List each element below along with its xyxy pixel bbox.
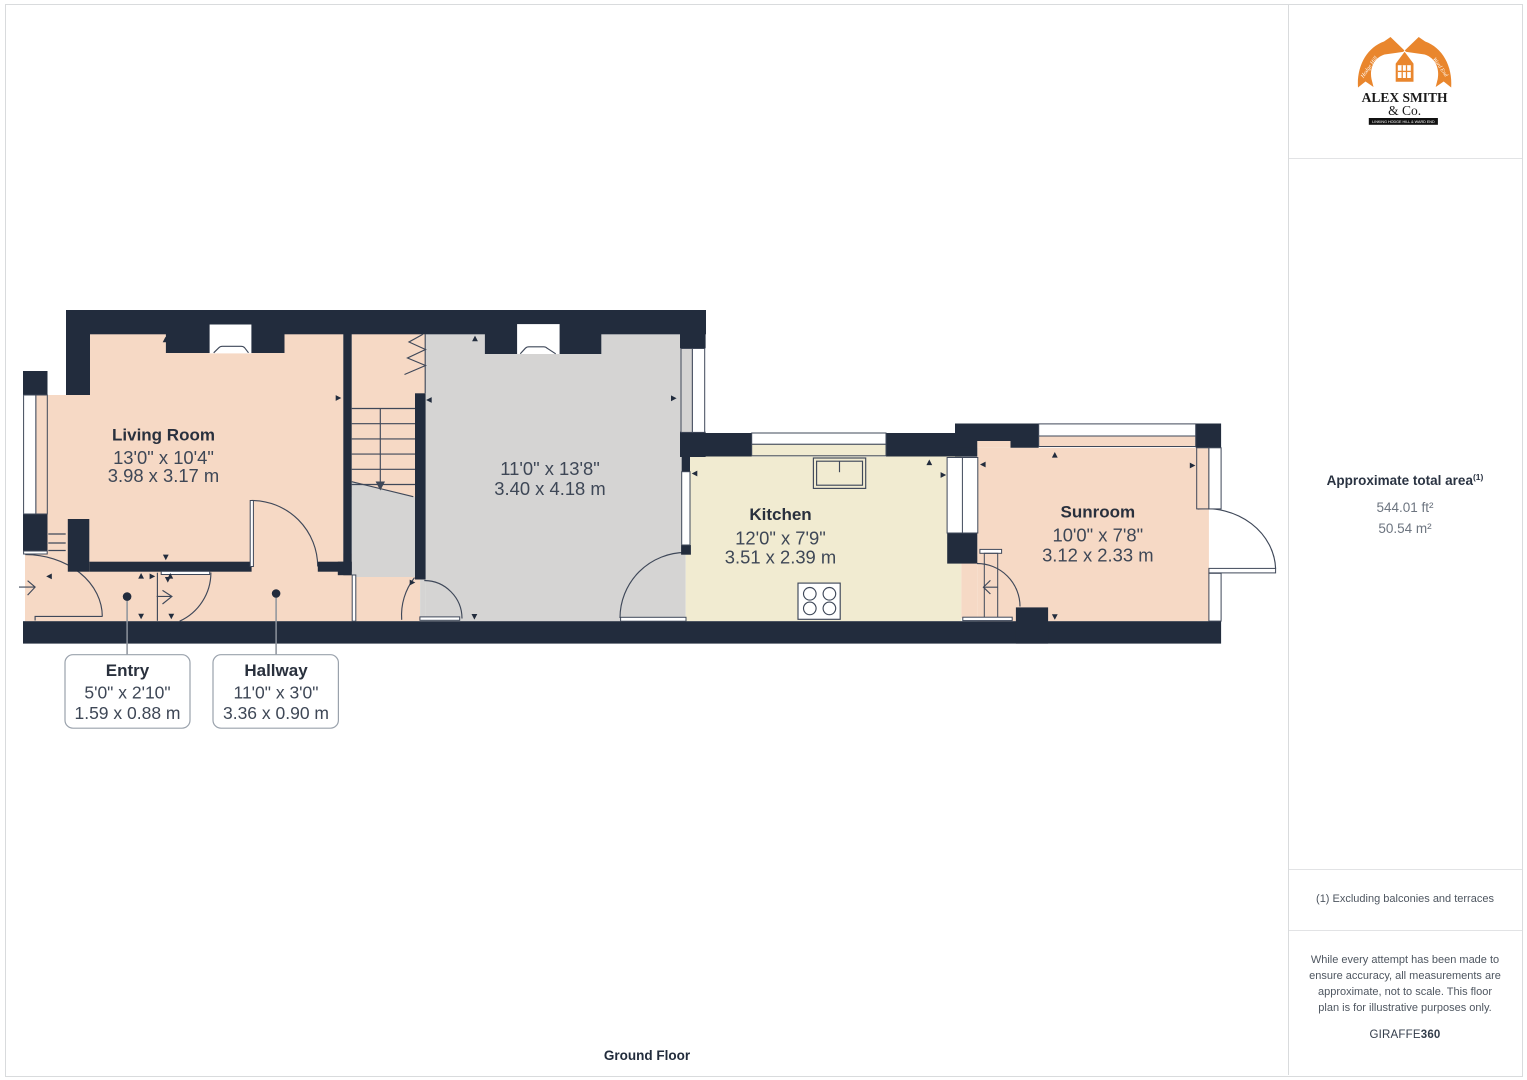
svg-text:3.36 x 0.90 m: 3.36 x 0.90 m xyxy=(223,703,329,723)
svg-text:11'0" x 3'0": 11'0" x 3'0" xyxy=(234,683,319,703)
svg-text:12'0" x 7'9": 12'0" x 7'9" xyxy=(735,528,826,549)
svg-text:Sunroom: Sunroom xyxy=(1060,503,1135,522)
svg-text:Entry: Entry xyxy=(106,661,150,680)
svg-text:10'0" x 7'8": 10'0" x 7'8" xyxy=(1052,525,1143,546)
svg-text:3.40 x 4.18 m: 3.40 x 4.18 m xyxy=(494,478,605,499)
svg-text:Hallway: Hallway xyxy=(244,661,308,680)
svg-text:11'0" x 13'8": 11'0" x 13'8" xyxy=(500,458,600,479)
svg-text:Living Room: Living Room xyxy=(112,426,215,445)
svg-text:3.12 x 2.33 m: 3.12 x 2.33 m xyxy=(1042,545,1153,566)
svg-text:Kitchen: Kitchen xyxy=(749,505,811,524)
svg-text:3.98 x 3.17 m: 3.98 x 3.17 m xyxy=(108,465,219,486)
svg-text:3.51 x 2.39 m: 3.51 x 2.39 m xyxy=(725,547,836,568)
svg-text:5'0" x 2'10": 5'0" x 2'10" xyxy=(84,683,170,703)
svg-text:1.59 x 0.88 m: 1.59 x 0.88 m xyxy=(74,703,180,723)
